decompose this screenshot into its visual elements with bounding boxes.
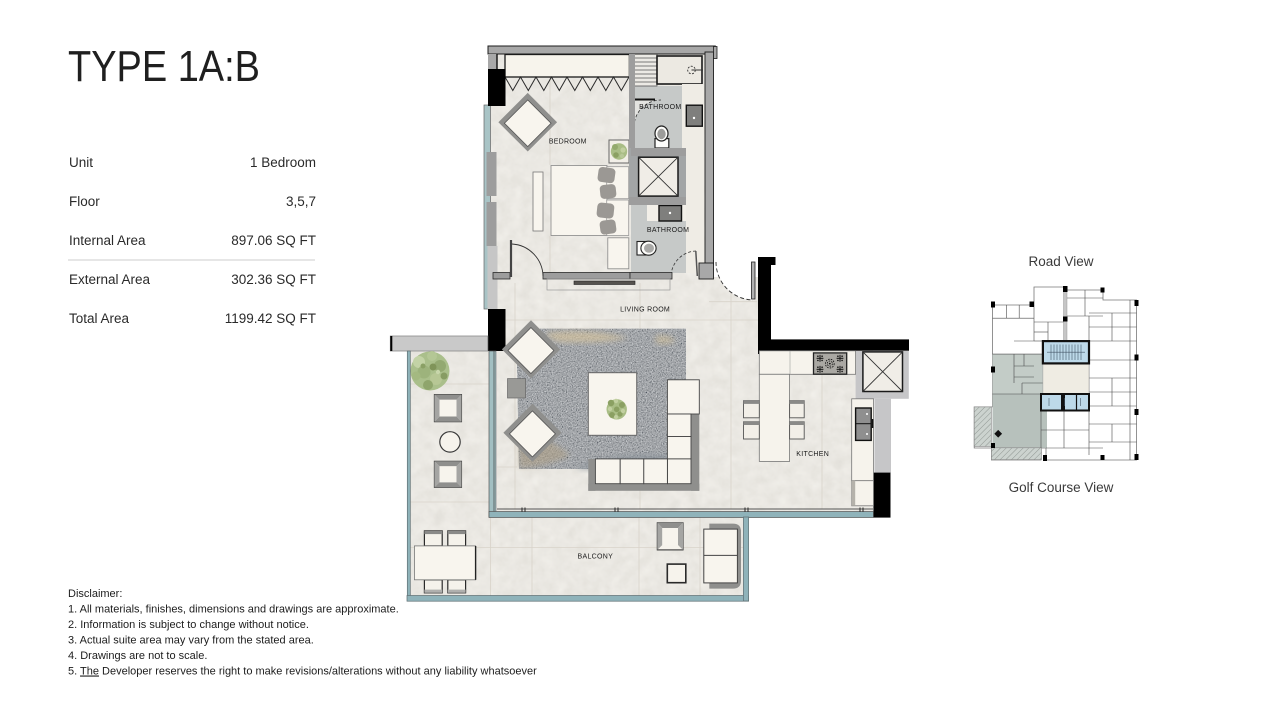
svg-text:Unit: Unit (69, 155, 93, 170)
svg-text:302.36 SQ FT: 302.36 SQ FT (231, 272, 316, 287)
svg-text:BATHROOM: BATHROOM (639, 104, 681, 111)
svg-text:2. Information is subject to c: 2. Information is subject to change with… (68, 619, 309, 631)
svg-text:1199.42 SQ FT: 1199.42 SQ FT (225, 311, 316, 326)
svg-text:Golf Course View: Golf Course View (1009, 480, 1114, 495)
svg-text:5. The Developer reserves the: 5. The Developer reserves the right to m… (68, 666, 537, 678)
svg-text:1 Bedroom: 1 Bedroom (250, 155, 316, 170)
svg-text:Internal Area: Internal Area (69, 233, 146, 248)
svg-text:4. Drawings are not to scale.: 4. Drawings are not to scale. (68, 650, 207, 662)
svg-text:Disclaimer:: Disclaimer: (68, 588, 122, 600)
svg-text:External Area: External Area (69, 272, 151, 287)
svg-text:897.06 SQ FT: 897.06 SQ FT (231, 233, 316, 248)
svg-text:3. Actual suite area may vary: 3. Actual suite area may vary from the s… (68, 635, 314, 647)
svg-text:BEDROOM: BEDROOM (549, 138, 587, 145)
svg-text:BALCONY: BALCONY (578, 553, 614, 560)
svg-text:Floor: Floor (69, 194, 100, 209)
svg-text:LIVING ROOM: LIVING ROOM (620, 307, 670, 314)
svg-text:Road View: Road View (1028, 254, 1093, 269)
svg-text:TYPE 1A:B: TYPE 1A:B (68, 43, 260, 91)
svg-text:1. All materials, finishes, di: 1. All materials, finishes, dimensions a… (68, 604, 399, 616)
svg-text:3,5,7: 3,5,7 (286, 194, 316, 209)
svg-text:KITCHEN: KITCHEN (796, 451, 829, 458)
svg-text:BATHROOM: BATHROOM (647, 227, 689, 234)
svg-text:Total Area: Total Area (69, 311, 130, 326)
